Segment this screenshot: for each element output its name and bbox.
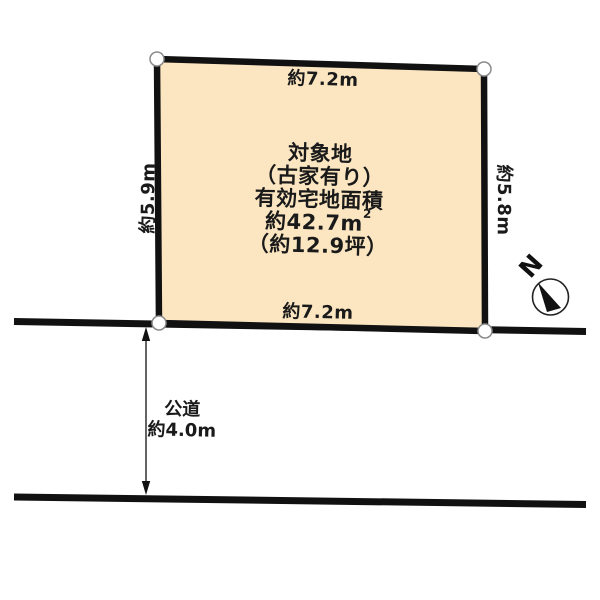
road-width-arrowhead-up xyxy=(142,327,150,341)
parcel-description: 対象地 （古家有り） 有効宅地面積 約42.7m2 （約12.9坪） xyxy=(248,141,391,260)
dimension-label-right: 約5.8m xyxy=(492,164,519,235)
road-far-edge-line xyxy=(14,497,586,505)
dimension-label-left: 約5.9m xyxy=(133,162,160,234)
north-compass-icon xyxy=(533,279,569,315)
parcel-area-tsubo: （約12.9坪） xyxy=(248,233,388,260)
dimension-label-top: 約7.2m xyxy=(287,64,359,92)
road-name: 公道 xyxy=(148,398,217,421)
road-width-arrowhead-down xyxy=(142,481,150,495)
corner-marker-top-right xyxy=(477,62,491,76)
corner-marker-top-left xyxy=(150,52,164,66)
dimension-label-bottom: 約7.2m xyxy=(282,297,354,325)
land-plot-diagram: 約7.2m 約7.2m 約5.9m 約5.8m 対象地 （古家有り） 有効宅地面… xyxy=(0,0,600,600)
corner-marker-bottom-left xyxy=(152,316,166,330)
road-annotation: 公道 約4.0m xyxy=(147,398,217,442)
parcel-area-superscript: 2 xyxy=(363,206,372,220)
road-width-value: 約4.0m xyxy=(147,419,216,442)
corner-marker-bottom-right xyxy=(478,324,492,338)
